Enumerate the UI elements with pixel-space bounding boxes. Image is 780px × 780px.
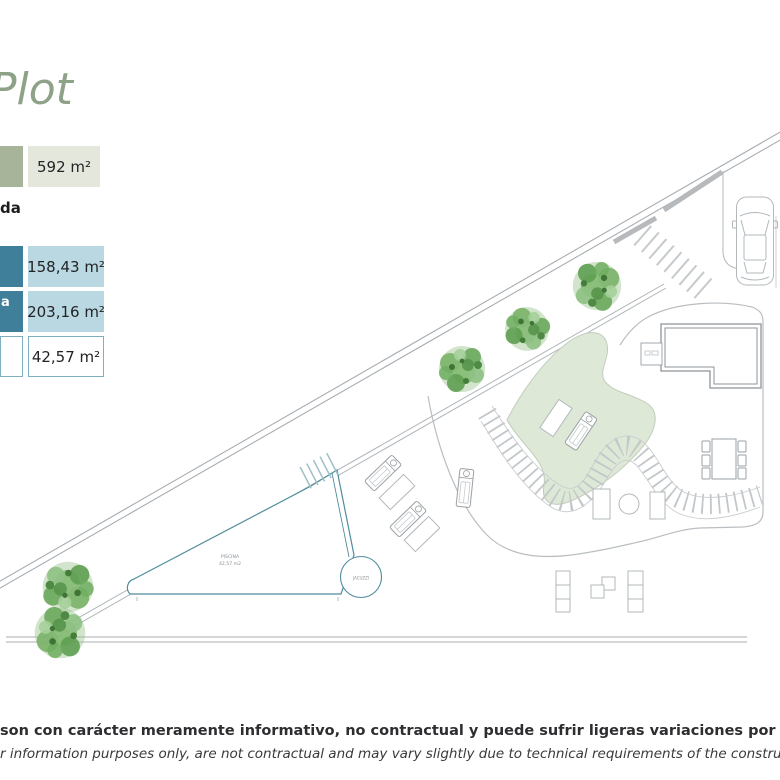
plot-boundary-bottom — [6, 637, 747, 642]
pool-area-label: 42,57 m2 — [219, 561, 241, 567]
boundary-wall-segment — [614, 172, 722, 242]
jacuzzi-label: JACUZZI — [352, 576, 369, 581]
swimming-pool: PISCINA 42,57 m2 — [127, 463, 354, 601]
dining-table-set — [702, 439, 746, 479]
chillout-furniture — [593, 489, 665, 519]
driveway-ramp-steps — [642, 235, 706, 291]
disclaimer-english: r information purposes only, are not con… — [0, 746, 780, 762]
disclaimer-spanish: son con carácter meramente informativo, … — [0, 723, 780, 739]
garden-furniture — [556, 571, 643, 612]
house-roof — [661, 324, 761, 388]
pool-name-label: PISCINA — [221, 554, 240, 560]
car-plan-icon — [733, 197, 778, 285]
pool-steps — [305, 463, 334, 478]
jacuzzi: JACUZZI — [341, 557, 382, 598]
technical-room — [641, 343, 662, 365]
site-plan-drawing: PISCINA 42,57 m2 JACUZZI — [0, 0, 780, 780]
